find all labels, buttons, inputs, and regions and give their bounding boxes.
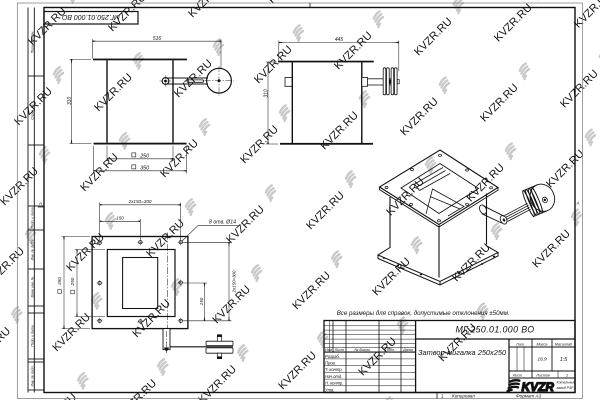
svg-text:Н. контр.: Н. контр.: [325, 381, 343, 386]
svg-text:KVZR.RU: KVZR.RU: [172, 57, 215, 100]
svg-text:Изм: Изм: [325, 348, 332, 352]
svg-text:Нач.отд.: Нач.отд.: [325, 374, 342, 379]
svg-text:KVZR.RU: KVZR.RU: [92, 71, 135, 114]
svg-text:KVZR.RU: KVZR.RU: [450, 242, 493, 285]
svg-text:KVZR.RU: KVZR.RU: [252, 43, 295, 86]
svg-text:KVZR.RU: KVZR.RU: [412, 16, 455, 59]
svg-text:KVZR.RU: KVZR.RU: [356, 336, 399, 379]
svg-text:18,9: 18,9: [537, 357, 547, 363]
svg-text:2х150=300: 2х150=300: [128, 199, 152, 204]
svg-text:№ докум.: № докум.: [354, 348, 370, 352]
svg-text:завод РЗР: завод РЗР: [556, 386, 575, 390]
svg-text:Т. контр.: Т. контр.: [325, 367, 343, 372]
svg-text:Подп. и дата: Подп. и дата: [30, 207, 34, 228]
svg-text:KVZR.RU: KVZR.RU: [78, 151, 121, 194]
svg-text:Справ. №: Справ. №: [30, 104, 34, 120]
svg-text:Листов: Листов: [535, 374, 550, 378]
svg-text:KVZR.RU: KVZR.RU: [318, 110, 361, 153]
svg-text:KVZR.RU: KVZR.RU: [50, 311, 93, 354]
svg-text:Затвор-мигалка 250х250: Затвор-мигалка 250х250: [418, 348, 507, 357]
svg-text:Копировал: Копировал: [452, 394, 475, 399]
svg-text:KVZR.RU: KVZR.RU: [116, 377, 159, 400]
svg-text:Дата: Дата: [402, 348, 413, 352]
svg-text:Масштаб: Масштаб: [555, 342, 573, 346]
svg-text:Формат А3: Формат А3: [516, 394, 542, 399]
svg-text:KVZR.RU: KVZR.RU: [0, 245, 27, 288]
svg-text:МГ.250.01.000 ВО: МГ.250.01.000 ВО: [455, 325, 534, 335]
svg-text:МГ.250.01.000 ВО: МГ.250.01.000 ВО: [62, 13, 120, 20]
svg-text:Разраб.: Разраб.: [325, 354, 340, 359]
svg-text:Лит.: Лит.: [515, 342, 525, 346]
svg-text:KVZR.RU: KVZR.RU: [332, 30, 375, 73]
svg-text:250: 250: [70, 277, 75, 286]
svg-text:KVZR.RU: KVZR.RU: [530, 228, 573, 271]
svg-text:Лист: Лист: [512, 374, 523, 378]
svg-text:150: 150: [116, 216, 124, 221]
svg-text:KVZR.RU: KVZR.RU: [478, 82, 521, 125]
svg-text:1:5: 1:5: [560, 357, 568, 363]
svg-text:310: 310: [67, 97, 73, 106]
svg-text:8 отв. Ø14: 8 отв. Ø14: [209, 220, 236, 226]
svg-text:250: 250: [139, 153, 149, 159]
svg-text:Взам. инв. №: Взам. инв. №: [30, 276, 34, 297]
svg-text:Масса: Масса: [537, 342, 548, 346]
svg-text:Пров.: Пров.: [325, 361, 336, 366]
svg-text:KVZR.RU: KVZR.RU: [196, 363, 239, 400]
svg-text:А: А: [576, 201, 580, 206]
svg-text:Утв.: Утв.: [325, 387, 334, 392]
svg-text:Подп. и дата: Подп. и дата: [30, 325, 34, 346]
svg-text:150: 150: [199, 297, 204, 305]
svg-text:KVZR.RU: KVZR.RU: [0, 165, 41, 208]
svg-text:Инв. № дубл.: Инв. № дубл.: [30, 240, 34, 261]
svg-text:2х150=300: 2х150=300: [231, 270, 236, 293]
svg-text:А: А: [38, 201, 42, 206]
svg-text:KVZR.RU: KVZR.RU: [544, 148, 587, 191]
svg-text:516: 516: [153, 36, 162, 42]
svg-text:Подп.: Подп.: [385, 348, 395, 352]
svg-text:KVZR.RU: KVZR.RU: [0, 325, 13, 368]
svg-text:KVZR: KVZR: [522, 380, 555, 394]
svg-text:KVZR.RU: KVZR.RU: [558, 68, 600, 111]
svg-text:KVZR.RU: KVZR.RU: [238, 123, 281, 166]
svg-text:1: 1: [441, 394, 444, 399]
svg-text:1: 1: [566, 374, 568, 378]
svg-text:KVZR.RU: KVZR.RU: [398, 96, 441, 139]
svg-text:445: 445: [335, 37, 344, 43]
svg-text:Лист: Лист: [334, 348, 345, 352]
svg-text:KVZR.RU: KVZR.RU: [370, 256, 413, 299]
svg-text:KVZR.RU: KVZR.RU: [572, 0, 600, 30]
svg-text:350: 350: [57, 277, 62, 285]
svg-text:350: 350: [140, 165, 149, 171]
svg-text:KVZR.RU: KVZR.RU: [276, 349, 319, 392]
svg-text:KVZR.RU: KVZR.RU: [304, 190, 347, 233]
svg-text:KVZR.RU: KVZR.RU: [290, 269, 333, 312]
svg-text:Котельный: Котельный: [557, 381, 576, 385]
svg-text:Все размеры для справок, допус: Все размеры для справок, допустимые откл…: [337, 310, 510, 317]
svg-text:KVZR.RU: KVZR.RU: [64, 231, 107, 274]
svg-text:Перв. примен.: Перв. примен.: [30, 31, 34, 54]
svg-text:Инв. № подл.: Инв. № подл.: [30, 365, 34, 386]
svg-text:310: 310: [264, 89, 270, 98]
